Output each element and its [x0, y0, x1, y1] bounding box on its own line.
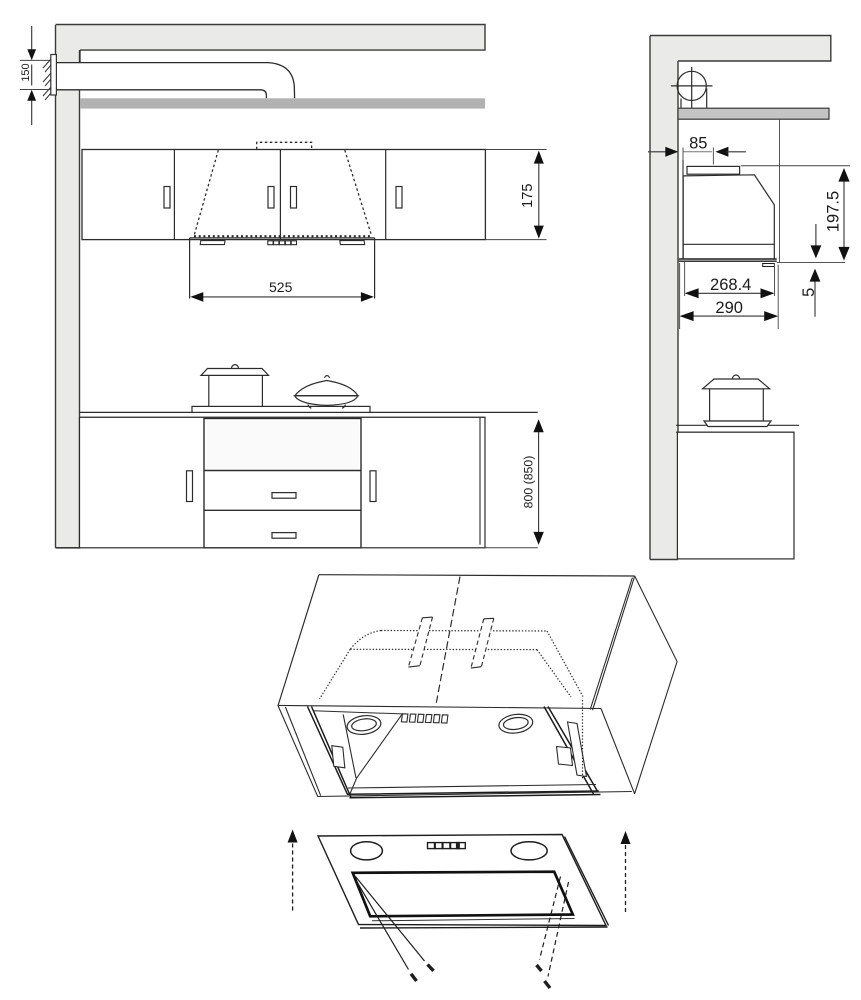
svg-text:150: 150 — [20, 63, 32, 81]
svg-text:268.4: 268.4 — [710, 276, 751, 294]
svg-text:290: 290 — [715, 299, 743, 317]
svg-text:5: 5 — [800, 288, 818, 297]
svg-text:525: 525 — [269, 279, 293, 295]
svg-text:197.5: 197.5 — [825, 191, 843, 232]
svg-text:800 (850): 800 (850) — [521, 456, 535, 509]
svg-text:85: 85 — [689, 134, 707, 152]
svg-text:175: 175 — [520, 184, 536, 208]
